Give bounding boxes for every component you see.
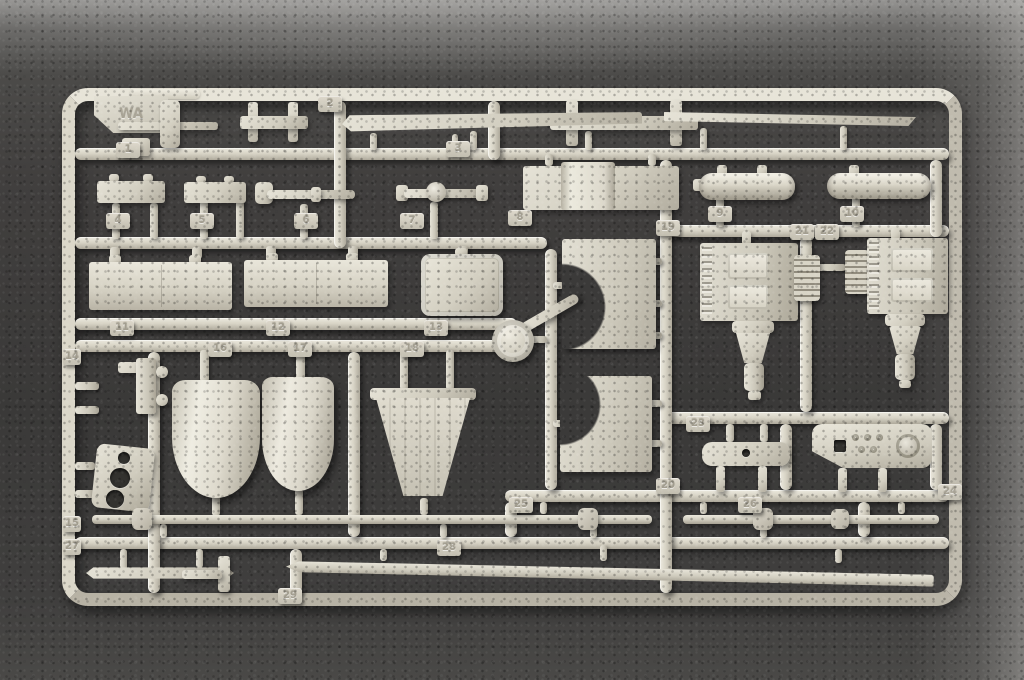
part-bar-plate-5 bbox=[184, 176, 248, 204]
sprue-gate-pin bbox=[75, 406, 99, 414]
part-number-tab: 1 bbox=[116, 142, 140, 158]
part-clevis bbox=[476, 185, 488, 201]
part-number-tab: 19 bbox=[656, 220, 680, 236]
sprue-gate-pin bbox=[840, 126, 847, 150]
part-bracket-pin bbox=[156, 394, 168, 406]
sprue-gate-pin bbox=[446, 350, 454, 390]
part-tee-bar bbox=[182, 570, 222, 579]
part-plate-body bbox=[184, 182, 246, 203]
part-long-side-blade bbox=[286, 552, 938, 588]
part-crescent-plate-lower bbox=[560, 376, 652, 472]
part-shaft-cone bbox=[889, 326, 921, 354]
part-gearbox-panel bbox=[728, 285, 768, 309]
part-number-tab: 5 bbox=[190, 213, 214, 229]
sprue-gate-pin bbox=[430, 202, 438, 239]
part-number-tab: 21 bbox=[790, 224, 814, 240]
part-dial-large bbox=[896, 434, 920, 458]
part-box-hump bbox=[561, 162, 615, 210]
sprue-gate-pin bbox=[150, 203, 158, 239]
part-shaft-tip bbox=[748, 391, 761, 400]
part-shaft-collar bbox=[732, 321, 774, 333]
part-shaft-lower bbox=[744, 363, 764, 391]
part-box-face bbox=[421, 254, 503, 316]
part-number-tab: 12 bbox=[266, 320, 290, 336]
sprue-photo: WA bbox=[0, 0, 1024, 680]
part-bracket-plate bbox=[136, 358, 156, 414]
part-number-tab: 25 bbox=[509, 497, 533, 513]
part-bracket-hole bbox=[742, 449, 750, 457]
part-number-tab: 6 bbox=[294, 213, 318, 229]
part-hole-large bbox=[110, 468, 130, 488]
part-ribbed-hopper bbox=[370, 388, 476, 502]
part-number-tab: 24 bbox=[938, 484, 962, 500]
part-bar-plate-4 bbox=[97, 174, 167, 204]
part-panel-face bbox=[244, 260, 388, 307]
part-hole-small bbox=[118, 452, 130, 464]
part-rod-shaft bbox=[683, 515, 939, 524]
part-number-tab: 8 bbox=[508, 210, 532, 226]
part-plate-body bbox=[97, 181, 165, 203]
part-number-tab: 11 bbox=[110, 320, 134, 336]
part-shaft-collar bbox=[885, 314, 925, 326]
part-number-tab: 17 bbox=[288, 341, 312, 357]
part-hopper-body bbox=[374, 398, 472, 498]
part-twin-panel-11 bbox=[89, 255, 233, 311]
part-shaft-lower bbox=[895, 354, 915, 380]
runner-vertical bbox=[488, 101, 500, 160]
part-dial-small bbox=[876, 434, 883, 441]
part-gearbox-22 bbox=[845, 228, 965, 396]
part-blade-lug bbox=[466, 557, 486, 565]
part-rounded-box-13 bbox=[421, 248, 505, 318]
part-ribbed-cylinder bbox=[845, 250, 869, 294]
part-dial-small bbox=[864, 434, 871, 441]
part-round-cap bbox=[492, 320, 534, 362]
part-shaft-tip bbox=[899, 380, 911, 388]
part-plate-with-holes bbox=[92, 444, 158, 514]
part-number-tab: 28 bbox=[437, 540, 461, 556]
part-number-tab: 14 bbox=[63, 349, 81, 365]
part-shaft-cone bbox=[736, 333, 770, 363]
part-jointed-rod-6 bbox=[253, 182, 357, 208]
sprue-gate-pin bbox=[370, 133, 377, 150]
part-instrument-panel bbox=[812, 422, 934, 492]
part-bracket-leg bbox=[716, 466, 725, 492]
part-dial-small bbox=[852, 434, 859, 441]
part-rod-shaft bbox=[92, 515, 652, 524]
part-number-tab: 23 bbox=[686, 416, 710, 432]
part-tank-9 bbox=[693, 165, 799, 203]
part-blade-lug bbox=[846, 566, 866, 574]
part-number-tab: 2 bbox=[318, 96, 342, 112]
part-number-tab: 18 bbox=[400, 341, 424, 357]
part-dial-small bbox=[870, 446, 877, 453]
runner-horizontal bbox=[75, 318, 517, 330]
part-number-tab: 10 bbox=[840, 206, 864, 222]
part-crescent-plate-upper bbox=[562, 239, 656, 349]
part-number-tab: 26 bbox=[738, 497, 762, 513]
part-clamp-bar bbox=[240, 116, 308, 129]
part-blade-lug bbox=[706, 563, 726, 571]
part-gearbox-21 bbox=[698, 231, 822, 403]
sprue-gate-pin bbox=[75, 382, 99, 390]
part-number-tab: 3 bbox=[446, 141, 470, 157]
part-ball-joint bbox=[426, 182, 446, 202]
part-panel-leg bbox=[838, 468, 847, 492]
part-gearbox-panel bbox=[891, 278, 933, 302]
part-two-leg-bracket bbox=[700, 440, 792, 492]
sprue-gate-pin bbox=[120, 549, 127, 570]
part-number-tab: 22 bbox=[815, 224, 839, 240]
part-rod-joint bbox=[831, 509, 849, 529]
part-blade-body bbox=[286, 560, 934, 588]
part-tee-bracket bbox=[182, 556, 238, 594]
part-bracket-pin bbox=[156, 366, 168, 378]
part-gearbox-panel bbox=[728, 253, 768, 279]
part-number-tab: 20 bbox=[656, 478, 680, 494]
part-rod-joint bbox=[132, 508, 152, 530]
part-number-tab: 15 bbox=[63, 516, 81, 532]
part-gearbox-panel bbox=[891, 248, 933, 272]
part-rod-collar bbox=[311, 187, 321, 202]
part-mounting-bracket bbox=[98, 356, 164, 418]
part-fender-shell-right bbox=[262, 377, 334, 491]
part-torsion-rod-26 bbox=[683, 506, 941, 536]
part-box-hump-8 bbox=[523, 162, 679, 212]
runner-horizontal bbox=[75, 537, 949, 549]
part-tank-10 bbox=[827, 165, 935, 201]
part-fender-shell-left bbox=[172, 380, 260, 498]
part-panel-cutout bbox=[834, 440, 846, 452]
part-tank-body bbox=[827, 173, 931, 199]
part-lever-body bbox=[160, 100, 180, 148]
part-number-tab: 7 bbox=[400, 213, 424, 229]
part-number-tab: 13 bbox=[424, 320, 448, 336]
sprue-gate-pin bbox=[236, 201, 244, 239]
part-ribbed-cylinder bbox=[794, 255, 820, 301]
part-dial-small bbox=[858, 446, 865, 453]
part-panel-face bbox=[89, 262, 232, 310]
part-number-tab: 27 bbox=[63, 539, 81, 555]
part-twin-panel-12 bbox=[244, 253, 389, 308]
part-tank-body bbox=[699, 173, 795, 200]
sprue-gate-pin bbox=[700, 128, 707, 150]
part-small-clamp bbox=[240, 102, 310, 146]
part-number-tab: 16 bbox=[208, 341, 232, 357]
part-ball-link-7 bbox=[396, 182, 488, 204]
part-bracket-leg bbox=[758, 466, 767, 492]
part-number-tab: 9 bbox=[708, 206, 732, 222]
part-number-tab: 4 bbox=[106, 213, 130, 229]
part-rod-joint bbox=[578, 508, 598, 530]
sprue-gate-pin bbox=[470, 131, 477, 150]
part-torsion-rod-25 bbox=[90, 506, 656, 536]
part-panel-leg bbox=[878, 468, 887, 492]
part-number-tab: 29 bbox=[278, 588, 302, 604]
